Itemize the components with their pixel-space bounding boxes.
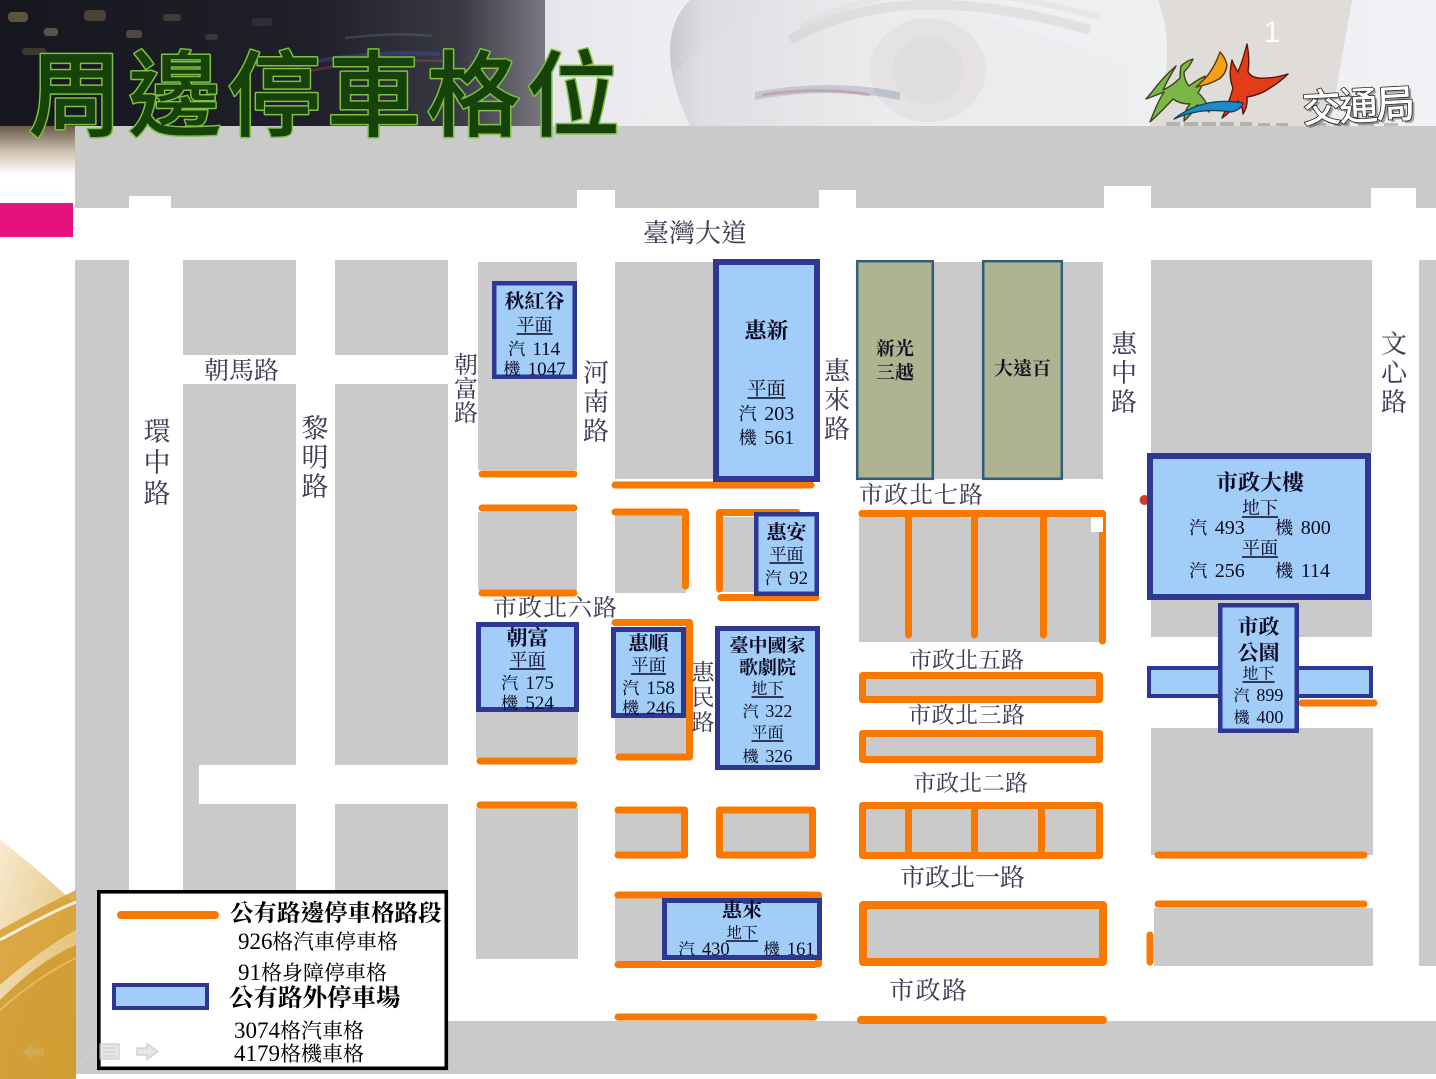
svg-text:561: 561 (764, 427, 794, 449)
svg-text:326: 326 (765, 746, 792, 766)
svg-text:1: 1 (1264, 16, 1281, 49)
svg-text:926: 926 (238, 929, 273, 954)
svg-text:175: 175 (525, 673, 554, 694)
svg-text:1047: 1047 (528, 359, 566, 380)
svg-text:114: 114 (1301, 560, 1330, 582)
svg-text:246: 246 (646, 698, 675, 719)
svg-text:322: 322 (765, 701, 792, 721)
svg-text:158: 158 (646, 678, 675, 699)
svg-text:256: 256 (1215, 560, 1245, 582)
svg-text:4179: 4179 (234, 1041, 280, 1066)
svg-text:800: 800 (1301, 517, 1331, 539)
svg-text:524: 524 (525, 693, 554, 714)
svg-text:92: 92 (789, 568, 808, 589)
svg-text:161: 161 (787, 940, 815, 960)
svg-text:91: 91 (238, 960, 261, 985)
svg-text:899: 899 (1256, 685, 1283, 705)
svg-text:493: 493 (1215, 517, 1245, 539)
svg-text:203: 203 (764, 403, 794, 425)
svg-text:430: 430 (702, 940, 730, 960)
svg-text:400: 400 (1256, 707, 1283, 727)
svg-text:114: 114 (532, 339, 560, 360)
svg-text:3074: 3074 (234, 1018, 281, 1043)
